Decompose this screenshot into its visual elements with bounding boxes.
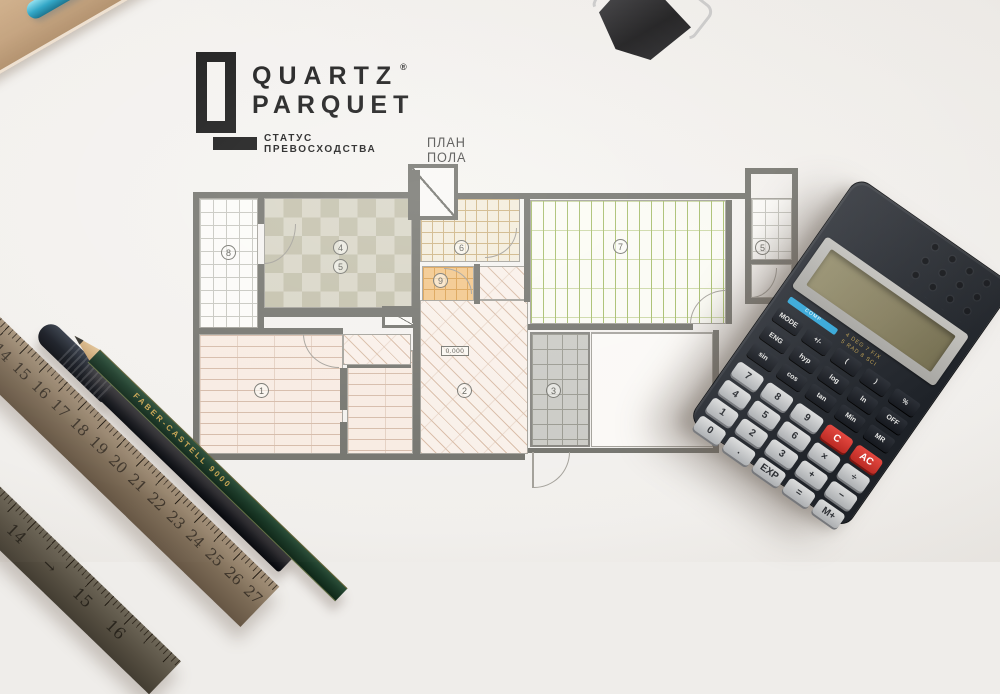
wall (413, 322, 420, 454)
brand-logo-icon-bar (213, 137, 257, 150)
room-label: 5 (333, 259, 348, 274)
wall (340, 422, 347, 460)
plan-title: ПЛАН ПОЛА (427, 135, 466, 165)
room-2-upper (476, 266, 528, 300)
room-label: 7 (613, 239, 628, 254)
room-label: 2 (457, 383, 472, 398)
brand-name-line2: PARQUET (252, 91, 414, 120)
wall (258, 197, 264, 224)
brand-name-line1: QUARTZ® (252, 62, 407, 91)
elevation-marker: 0.000 (441, 346, 469, 356)
floor-plan: 8 4 5 6 9 7 5 1 2 3 0.000 (185, 160, 805, 498)
room-label: 5 (755, 240, 770, 255)
scene: QUARTZ® PARQUET СТАТУС ПРЕВОСХОДСТВА ПЛА… (0, 0, 1000, 562)
room-2-hallway (420, 300, 528, 454)
brand-logo-icon (196, 52, 236, 133)
wall (524, 198, 530, 302)
wall (528, 324, 693, 330)
room-label: 1 (254, 383, 269, 398)
wall (412, 170, 420, 323)
wall (745, 168, 751, 198)
wall (193, 192, 413, 198)
wall (455, 193, 747, 199)
wall (262, 308, 413, 317)
wall (726, 200, 732, 324)
room-label: 8 (221, 245, 236, 260)
wall (340, 368, 347, 410)
registered-mark: ® (400, 62, 407, 72)
wall (347, 365, 411, 368)
corridor-hatch-strip (343, 334, 411, 365)
entry-door-arc (534, 452, 570, 488)
wall (474, 264, 480, 304)
wall (745, 168, 798, 174)
wall (748, 260, 792, 264)
room-label: 3 (546, 383, 561, 398)
wall (258, 264, 264, 330)
brand-tagline: СТАТУС ПРЕВОСХОДСТВА (264, 133, 376, 155)
wall (193, 192, 199, 460)
room-8-balcony (199, 198, 258, 328)
wall (195, 454, 525, 460)
room-label: 4 (333, 240, 348, 255)
room-label: 6 (454, 240, 469, 255)
brand-logo-icon-slot (207, 62, 225, 121)
room-label: 9 (433, 273, 448, 288)
